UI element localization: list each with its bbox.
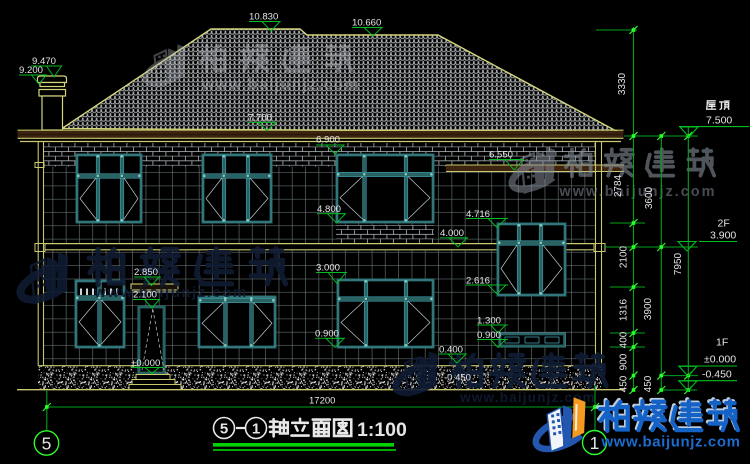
- svg-text:450: 450: [619, 375, 630, 392]
- svg-text:1316: 1316: [619, 298, 630, 321]
- svg-text:1: 1: [590, 433, 600, 453]
- svg-text:900: 900: [619, 353, 630, 370]
- svg-text:www.baijunjz.com: www.baijunjz.com: [558, 184, 716, 200]
- svg-text:10.660: 10.660: [352, 18, 381, 29]
- svg-text:www.baijunjz.com: www.baijunjz.com: [201, 77, 360, 94]
- svg-text:www.baijunjz.com: www.baijunjz.com: [600, 434, 740, 451]
- svg-text:www.baijunjz.com: www.baijunjz.com: [93, 284, 247, 301]
- svg-text:5: 5: [220, 421, 228, 438]
- svg-text:9.200: 9.200: [19, 65, 43, 76]
- svg-text:3.000: 3.000: [316, 263, 340, 274]
- svg-text:-0.450: -0.450: [444, 373, 471, 384]
- svg-text:±0.000: ±0.000: [704, 354, 736, 366]
- svg-text:400: 400: [619, 331, 630, 348]
- svg-text:450: 450: [643, 375, 654, 392]
- svg-text:1F: 1F: [716, 337, 728, 349]
- svg-text:-0.450: -0.450: [702, 369, 732, 381]
- svg-text:2784: 2784: [613, 174, 624, 197]
- svg-text:6.900: 6.900: [316, 135, 340, 146]
- svg-text:2100: 2100: [619, 245, 630, 268]
- svg-text:2F: 2F: [718, 218, 730, 230]
- svg-text:1: 1: [252, 421, 260, 438]
- svg-text:6.550: 6.550: [489, 150, 513, 161]
- svg-text:2.100: 2.100: [133, 290, 157, 301]
- svg-text:7.500: 7.500: [706, 115, 732, 127]
- svg-text:10.830: 10.830: [249, 12, 278, 23]
- svg-text:5: 5: [42, 434, 52, 454]
- svg-text:7950: 7950: [673, 252, 684, 275]
- svg-text:3900: 3900: [643, 297, 654, 320]
- svg-text:3.900: 3.900: [710, 230, 736, 242]
- svg-text:3600: 3600: [644, 186, 655, 209]
- svg-text:3330: 3330: [617, 72, 628, 95]
- svg-text:2.850: 2.850: [134, 267, 158, 278]
- svg-text:17200: 17200: [309, 396, 335, 407]
- svg-text:1:100: 1:100: [357, 419, 407, 441]
